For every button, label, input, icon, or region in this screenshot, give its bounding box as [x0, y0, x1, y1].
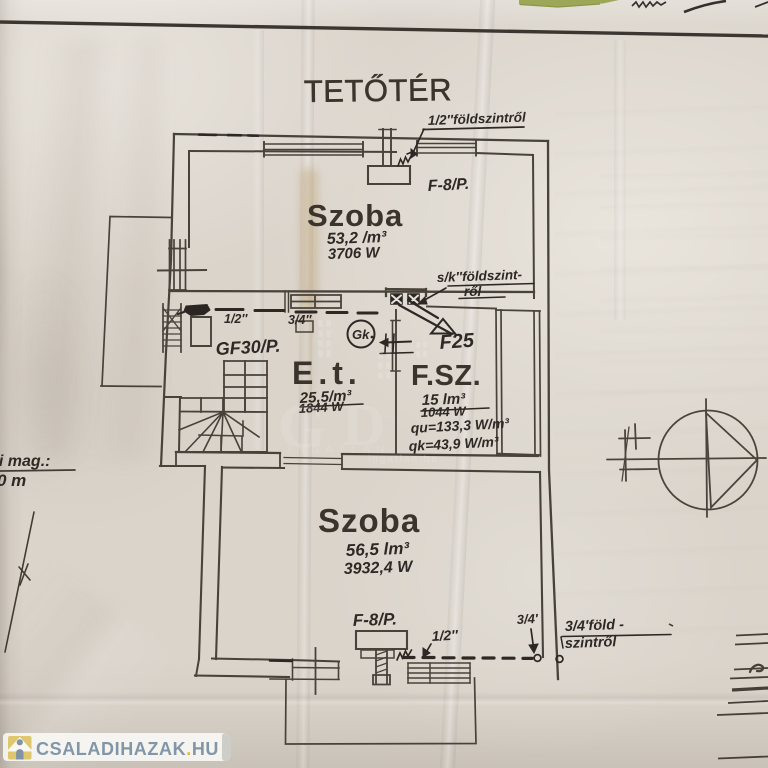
- svg-text:CSALADIHAZAK.HU: CSALADIHAZAK.HU: [36, 739, 219, 759]
- svg-text:F-8/P.: F-8/P.: [352, 609, 397, 630]
- svg-text:1/2″: 1/2″: [224, 312, 248, 326]
- svg-text:3/4″: 3/4″: [288, 313, 312, 327]
- svg-text:si mag.:: si mag.:: [0, 453, 50, 470]
- svg-text:szintről: szintről: [565, 634, 618, 652]
- svg-text:F.SZ.: F.SZ.: [411, 360, 481, 392]
- svg-text:3932,4 W: 3932,4 W: [344, 559, 415, 578]
- svg-text:Gk: Gk: [352, 327, 370, 342]
- svg-text:1/2″: 1/2″: [431, 627, 459, 644]
- svg-text:Szoba: Szoba: [307, 198, 403, 233]
- svg-text:F25: F25: [439, 330, 476, 354]
- svg-text:3/4′: 3/4′: [516, 611, 539, 627]
- svg-text:56,5 lm³: 56,5 lm³: [345, 539, 410, 560]
- svg-text:0 m: 0 m: [0, 471, 26, 490]
- svg-text:1/2″földszintről: 1/2″földszintről: [428, 110, 527, 128]
- svg-text:TETŐTÉR: TETŐTÉR: [304, 72, 453, 109]
- svg-text:Szoba: Szoba: [318, 502, 420, 539]
- svg-text:F-8/P.: F-8/P.: [427, 176, 469, 195]
- svg-text:s/k″földszint-: s/k″földszint-: [437, 267, 523, 285]
- svg-text:ről: ről: [464, 284, 482, 299]
- svg-text:ingatlan.hu: ingatlan.hu: [368, 454, 439, 465]
- svg-text:3706 W: 3706 W: [328, 244, 382, 263]
- svg-text:3/4′föld -: 3/4′föld -: [565, 617, 625, 635]
- svg-text:GF30/P.: GF30/P.: [215, 336, 281, 359]
- svg-text:qk=43,9 W/m³: qk=43,9 W/m³: [408, 433, 499, 454]
- svg-text:E.t.: E.t.: [292, 355, 362, 391]
